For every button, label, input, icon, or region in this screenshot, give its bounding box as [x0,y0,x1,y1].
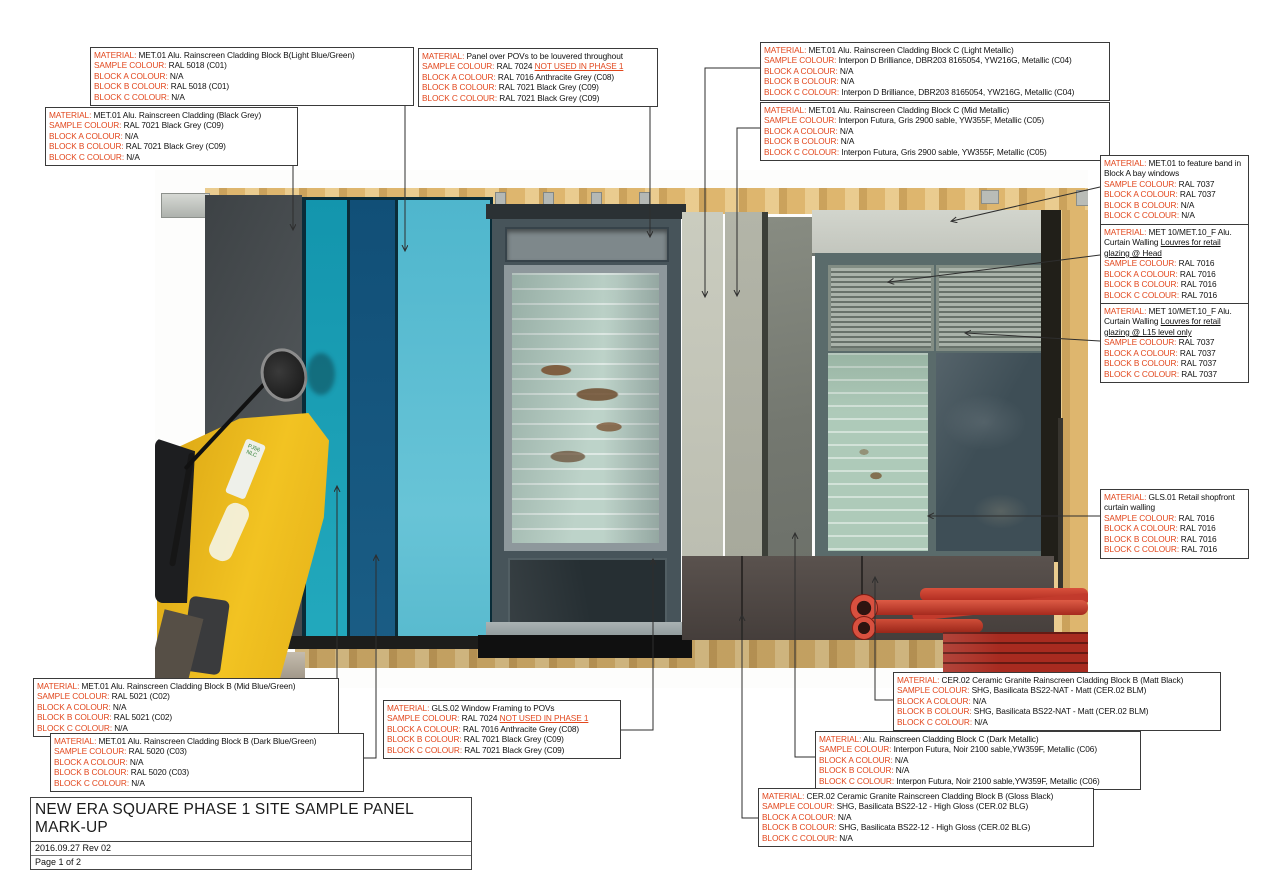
block-b-row: BLOCK B COLOUR: RAL 7021 Black Grey (C09… [387,734,617,744]
block-c-row: BLOCK C COLOUR: N/A [54,778,360,788]
sample-colour-row: SAMPLE COLOUR: RAL 7016 [1104,258,1245,268]
block-a-row: BLOCK A COLOUR: RAL 7016 [1104,269,1245,279]
sample-colour-row: SAMPLE COLOUR: SHG, Basilicata BS22-12 -… [762,801,1090,811]
material-row: MATERIAL: MET.01 to feature band in Bloc… [1104,158,1245,179]
page-number: Page 1 of 2 [31,856,471,869]
block-a-row: BLOCK A COLOUR: RAL 7016 Anthracite Grey… [422,72,654,82]
revision-text: 2016.09.27 Rev 02 [31,842,471,856]
block-a-row: BLOCK A COLOUR: N/A [49,131,294,141]
sample-colour-row: SAMPLE COLOUR: RAL 7016 [1104,513,1245,523]
block-b-row: BLOCK B COLOUR: RAL 5018 (C01) [94,81,410,91]
block-b-row: BLOCK B COLOUR: SHG, Basilicata BS22-12 … [762,822,1090,832]
site-sample-panel-photo: PJ56 NLC [155,170,1088,688]
block-c-row: BLOCK C COLOUR: N/A [49,152,294,162]
material-row: MATERIAL: MET.01 Alu. Rainscreen Claddin… [94,50,410,60]
block-a-row: BLOCK A COLOUR: RAL 7016 [1104,523,1245,533]
block-b-row: BLOCK B COLOUR: N/A [764,136,1106,146]
block-a-row: BLOCK A COLOUR: N/A [897,696,1217,706]
material-row: MATERIAL: MET.01 Alu. Rainscreen Claddin… [54,736,360,746]
sample-colour-row: SAMPLE COLOUR: RAL 5021 (C02) [37,691,335,701]
vent-duct [161,193,210,218]
sample-colour-row: SAMPLE COLOUR: Interpon Futura, Noir 210… [819,744,1137,754]
block-b-row: BLOCK B COLOUR: RAL 7016 [1104,534,1245,544]
window2-glazing-right-dark [936,353,1044,551]
feature-band-ral7037 [812,210,1061,256]
material-row: MATERIAL: Alu. Rainscreen Cladding Block… [819,734,1137,744]
material-row: MATERIAL: Panel over POVs to be louvered… [422,51,654,61]
block-b-row: BLOCK B COLOUR: SHG, Basilicata BS22-NAT… [897,706,1217,716]
window2-louvre-right [936,265,1050,351]
annotation-box-ceramic-granite-gloss-black: MATERIAL: CER.02 Ceramic Granite Rainscr… [758,788,1094,847]
block-a-row: BLOCK A COLOUR: RAL 7016 Anthracite Grey… [387,724,617,734]
annotation-box-panel-over-povs: MATERIAL: Panel over POVs to be louvered… [418,48,658,107]
block-a-row: BLOCK A COLOUR: N/A [762,812,1090,822]
scaffold-tube [858,619,983,633]
sample-colour-row: SAMPLE COLOUR: RAL 7021 Black Grey (C09) [49,120,294,130]
window1-pov-louvre-panel [505,227,669,262]
annotation-box-feature-band-bay-windows: MATERIAL: MET.01 to feature band in Bloc… [1100,155,1249,225]
block-c-row: BLOCK C COLOUR: RAL 7016 [1104,290,1245,300]
annotation-box-window-framing-povs: MATERIAL: GLS.02 Window Framing to POVsS… [383,700,621,759]
annotation-box-louvres-retail-head: MATERIAL: MET 10/MET.10_F Alu. Curtain W… [1100,224,1249,304]
annotation-box-block-c-dark-metallic: MATERIAL: Alu. Rainscreen Cladding Block… [815,731,1141,790]
panel-light-metallic [682,212,723,560]
block-c-row: BLOCK C COLOUR: RAL 7021 Black Grey (C09… [422,93,654,103]
annotation-box-black-grey-cladding: MATERIAL: MET.01 Alu. Rainscreen Claddin… [45,107,298,166]
block-a-row: BLOCK A COLOUR: N/A [764,126,1106,136]
block-c-row: BLOCK C COLOUR: N/A [94,92,410,102]
window1-coping [486,204,686,219]
block-a-row: BLOCK A COLOUR: N/A [819,755,1137,765]
block-c-row: BLOCK C COLOUR: N/A [762,833,1090,843]
annotation-box-block-b-dark-blue-green: MATERIAL: MET.01 Alu. Rainscreen Claddin… [50,733,364,792]
sample-colour-row: SAMPLE COLOUR: RAL 7037 [1104,337,1245,347]
material-row: MATERIAL: MET 10/MET.10_F Alu. Curtain W… [1104,227,1245,258]
window1-glazing-brick-reflection [512,273,659,543]
page-title: NEW ERA SQUARE PHASE 1 SITE SAMPLE PANEL… [31,798,471,842]
annotation-box-retail-shopfront-curtain-walling: MATERIAL: GLS.01 Retail shopfront curtai… [1100,489,1249,559]
sample-colour-row: SAMPLE COLOUR: RAL 7024 NOT USED IN PHAS… [387,713,617,723]
sample-colour-row: SAMPLE COLOUR: RAL 7024 NOT USED IN PHAS… [422,61,654,71]
block-b-row: BLOCK B COLOUR: RAL 7016 [1104,279,1245,289]
block-a-row: BLOCK A COLOUR: RAL 7037 [1104,189,1245,199]
sample-colour-row: SAMPLE COLOUR: RAL 7037 [1104,179,1245,189]
block-c-row: BLOCK C COLOUR: Interpon D Brilliance, D… [764,87,1106,97]
block-b-row: BLOCK B COLOUR: N/A [1104,200,1245,210]
material-row: MATERIAL: GLS.01 Retail shopfront curtai… [1104,492,1245,513]
block-b-row: BLOCK B COLOUR: RAL 7021 Black Grey (C09… [422,82,654,92]
panel-mid-metallic [725,212,762,560]
sample-colour-row: SAMPLE COLOUR: Interpon D Brilliance, DB… [764,55,1106,65]
block-c-row: BLOCK C COLOUR: RAL 7037 [1104,369,1245,379]
block-b-row: BLOCK B COLOUR: RAL 5020 (C03) [54,767,360,777]
annotation-box-block-c-light-metallic: MATERIAL: MET.01 Alu. Rainscreen Claddin… [760,42,1110,101]
block-a-row: BLOCK A COLOUR: N/A [94,71,410,81]
block-c-row: BLOCK C COLOUR: RAL 7016 [1104,544,1245,554]
block-b-row: BLOCK B COLOUR: N/A [764,76,1106,86]
block-b-row: BLOCK B COLOUR: RAL 7037 [1104,358,1245,368]
block-a-row: BLOCK A COLOUR: N/A [764,66,1106,76]
material-row: MATERIAL: GLS.02 Window Framing to POVs [387,703,617,713]
material-row: MATERIAL: MET.01 Alu. Rainscreen Claddin… [764,105,1106,115]
annotation-box-louvres-retail-l15: MATERIAL: MET 10/MET.10_F Alu. Curtain W… [1100,303,1249,383]
block-c-row: BLOCK C COLOUR: Interpon Futura, Gris 29… [764,147,1106,157]
sample-colour-row: SAMPLE COLOUR: RAL 5020 (C03) [54,746,360,756]
block-c-row: BLOCK C COLOUR: N/A [1104,210,1245,220]
material-row: MATERIAL: MET.01 Alu. Rainscreen Claddin… [49,110,294,120]
window1-spandrel-glass [508,558,667,628]
scaffold-standard-pole [1058,418,1063,596]
spandrel-seam [741,556,743,640]
block-c-row: BLOCK C COLOUR: Interpon Futura, Noir 21… [819,776,1137,786]
annotation-box-block-b-light-blue-green: MATERIAL: MET.01 Alu. Rainscreen Claddin… [90,47,414,106]
window1-base-shadow [478,635,692,658]
block-c-row: BLOCK C COLOUR: N/A [37,723,335,733]
scaffold-tube [855,600,1088,615]
document-page: { "page": { "title": "NEW ERA SQUARE PHA… [0,0,1268,857]
panel-dark-metallic [768,217,812,560]
panel-light-blue-green [398,200,490,646]
material-row: MATERIAL: CER.02 Ceramic Granite Rainscr… [762,791,1090,801]
material-row: MATERIAL: MET 10/MET.10_F Alu. Curtain W… [1104,306,1245,337]
panel-dark-blue-green [350,200,395,648]
sample-colour-row: SAMPLE COLOUR: RAL 5018 (C01) [94,60,410,70]
scaffold-board-stack [943,632,1088,688]
hoarding-clip [981,190,999,204]
block-b-row: BLOCK B COLOUR: N/A [819,765,1137,775]
sample-colour-row: SAMPLE COLOUR: Interpon Futura, Gris 290… [764,115,1106,125]
block-a-row: BLOCK A COLOUR: N/A [37,702,335,712]
mirror-shadow [307,353,335,395]
title-block: NEW ERA SQUARE PHASE 1 SITE SAMPLE PANEL… [30,797,472,870]
block-a-row: BLOCK A COLOUR: RAL 7037 [1104,348,1245,358]
hoarding-clip [1076,190,1088,206]
window2-louvre-left [828,265,934,351]
scaffold-tube-end [852,616,876,640]
annotation-box-block-c-mid-metallic: MATERIAL: MET.01 Alu. Rainscreen Claddin… [760,102,1110,161]
block-c-row: BLOCK C COLOUR: RAL 7021 Black Grey (C09… [387,745,617,755]
block-c-row: BLOCK C COLOUR: N/A [897,717,1217,727]
material-row: MATERIAL: MET.01 Alu. Rainscreen Claddin… [764,45,1106,55]
block-a-row: BLOCK A COLOUR: N/A [54,757,360,767]
block-b-row: BLOCK B COLOUR: RAL 7021 Black Grey (C09… [49,141,294,151]
window2-glazing-left-brick [828,353,928,551]
block-b-row: BLOCK B COLOUR: RAL 5021 (C02) [37,712,335,722]
